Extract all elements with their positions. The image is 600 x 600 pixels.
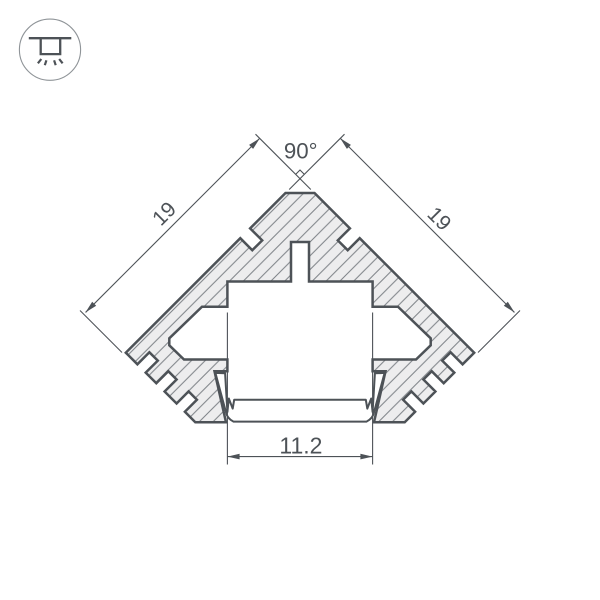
- svg-text:11.2: 11.2: [279, 433, 322, 459]
- svg-text:90°: 90°: [284, 139, 318, 164]
